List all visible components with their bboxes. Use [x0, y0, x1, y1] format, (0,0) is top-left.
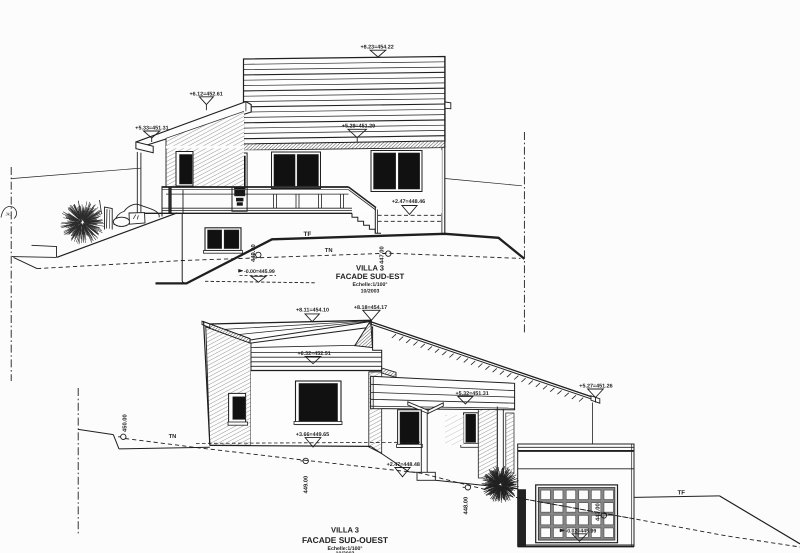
svg-text:+5.29=451.29: +5.29=451.29 — [342, 124, 375, 130]
svg-text:FACADE SUD-EST: FACADE SUD-EST — [336, 272, 405, 281]
svg-text:FACADE SUD-OUEST: FACADE SUD-OUEST — [302, 535, 389, 545]
svg-text:+5.32=451.31: +5.32=451.31 — [456, 391, 489, 397]
svg-text:Echelle:1/100°: Echelle:1/100° — [353, 282, 388, 288]
svg-text:+3.66=449.65: +3.66=449.65 — [296, 432, 329, 438]
svg-text:TN: TN — [169, 434, 177, 440]
svg-text:449.00: 449.00 — [303, 476, 310, 494]
svg-text:+2.47=448.46: +2.47=448.46 — [392, 199, 425, 205]
svg-text:VILLA 3: VILLA 3 — [331, 526, 359, 535]
svg-text:VILLA 3: VILLA 3 — [356, 264, 384, 273]
svg-text:TF: TF — [304, 231, 312, 238]
svg-text:450.00: 450.00 — [121, 414, 128, 432]
svg-text:447.00: 447.00 — [379, 246, 386, 264]
svg-text:-0.00=445.99: -0.00=445.99 — [244, 269, 275, 275]
svg-text:447.00: 447.00 — [595, 503, 602, 521]
svg-text:10/2003: 10/2003 — [361, 289, 380, 295]
svg-text:TN: TN — [325, 248, 333, 254]
svg-text:Jk.: Jk. — [6, 212, 11, 217]
svg-text:+8.11=454.10: +8.11=454.10 — [296, 308, 329, 314]
svg-text:448.00: 448.00 — [463, 497, 470, 515]
svg-text:TF: TF — [678, 490, 686, 497]
svg-text:+2.47=448.48: +2.47=448.48 — [387, 462, 420, 468]
svg-text:+8.23=454.22: +8.23=454.22 — [361, 44, 394, 50]
